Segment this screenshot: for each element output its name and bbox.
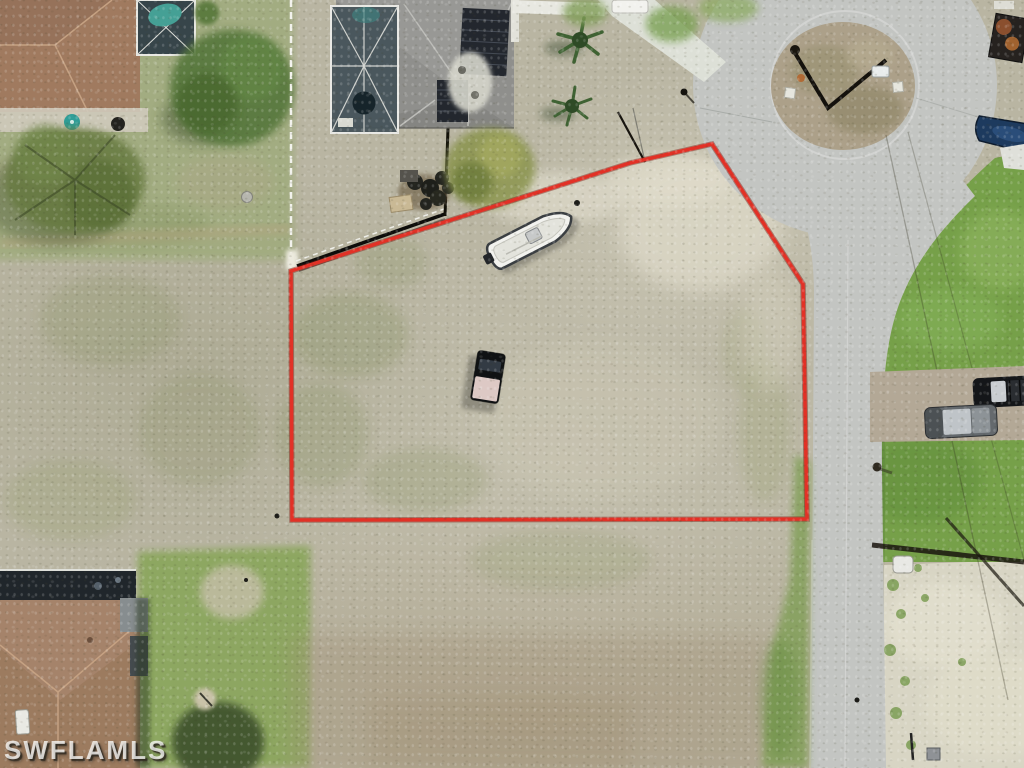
manhole-cover	[242, 192, 253, 203]
sand-bottom-right	[884, 560, 1024, 768]
skylight	[15, 710, 30, 735]
house-top-center	[331, 0, 519, 133]
round-bush	[195, 1, 219, 25]
pallet	[389, 195, 413, 213]
hot-tub	[353, 92, 376, 115]
grass-strip-road-west	[762, 455, 810, 768]
cul-de-sac-island	[771, 22, 915, 150]
small-equipment	[927, 748, 940, 760]
patio	[448, 52, 492, 112]
utility-marker-2	[893, 82, 904, 93]
aerial-photo: SWFLAMLS	[0, 0, 1024, 768]
white-car	[612, 0, 648, 13]
white-debris	[994, 1, 1014, 9]
black-suv	[972, 375, 1024, 408]
utility-marker-1	[784, 87, 795, 98]
dirt-bottom-center	[290, 635, 770, 768]
pole-transformer	[872, 66, 889, 77]
gravel-drive	[870, 366, 1024, 442]
grill	[111, 117, 125, 131]
mls-watermark: SWFLAMLS	[4, 735, 167, 766]
gray-suv	[924, 404, 998, 439]
equipment-trailer	[988, 13, 1024, 62]
palm-tree-2	[540, 87, 591, 125]
scene-overlay	[0, 0, 1024, 768]
rear-screen-roof	[0, 570, 136, 604]
trash-can	[893, 556, 913, 573]
truck-bed-cover	[472, 376, 500, 402]
orange-marker	[797, 74, 805, 82]
pool-cage-top-center	[331, 6, 398, 133]
